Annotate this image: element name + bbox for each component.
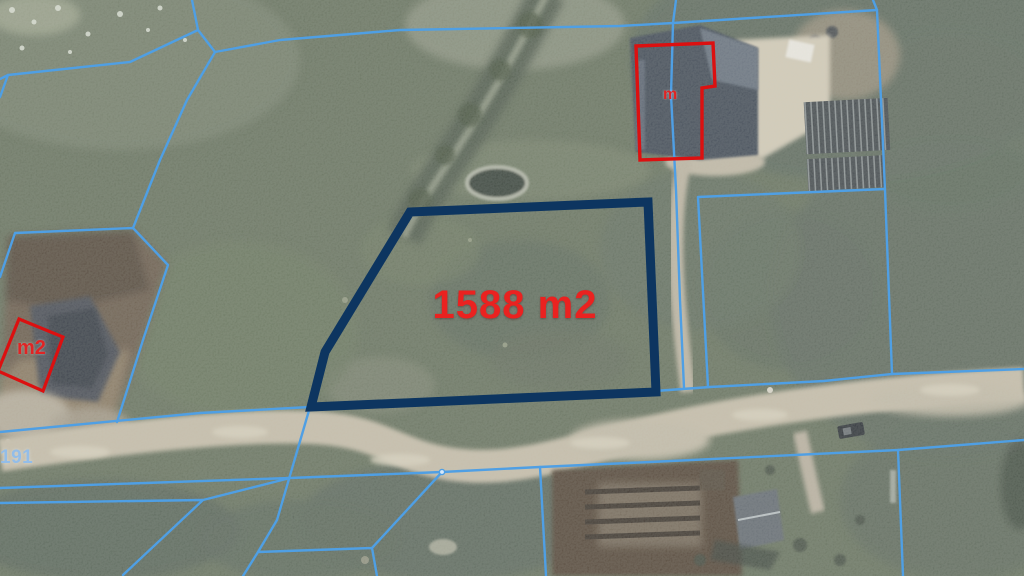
survey-node [439, 469, 444, 474]
parcel-area-label: 1588 m2 [410, 285, 620, 325]
right-building-label: m [663, 87, 677, 103]
road-number-label: 191 [0, 448, 33, 467]
map-viewport[interactable]: 1588 m2 m m2 191 [0, 0, 1024, 576]
left-building-label: m2 [17, 338, 46, 358]
